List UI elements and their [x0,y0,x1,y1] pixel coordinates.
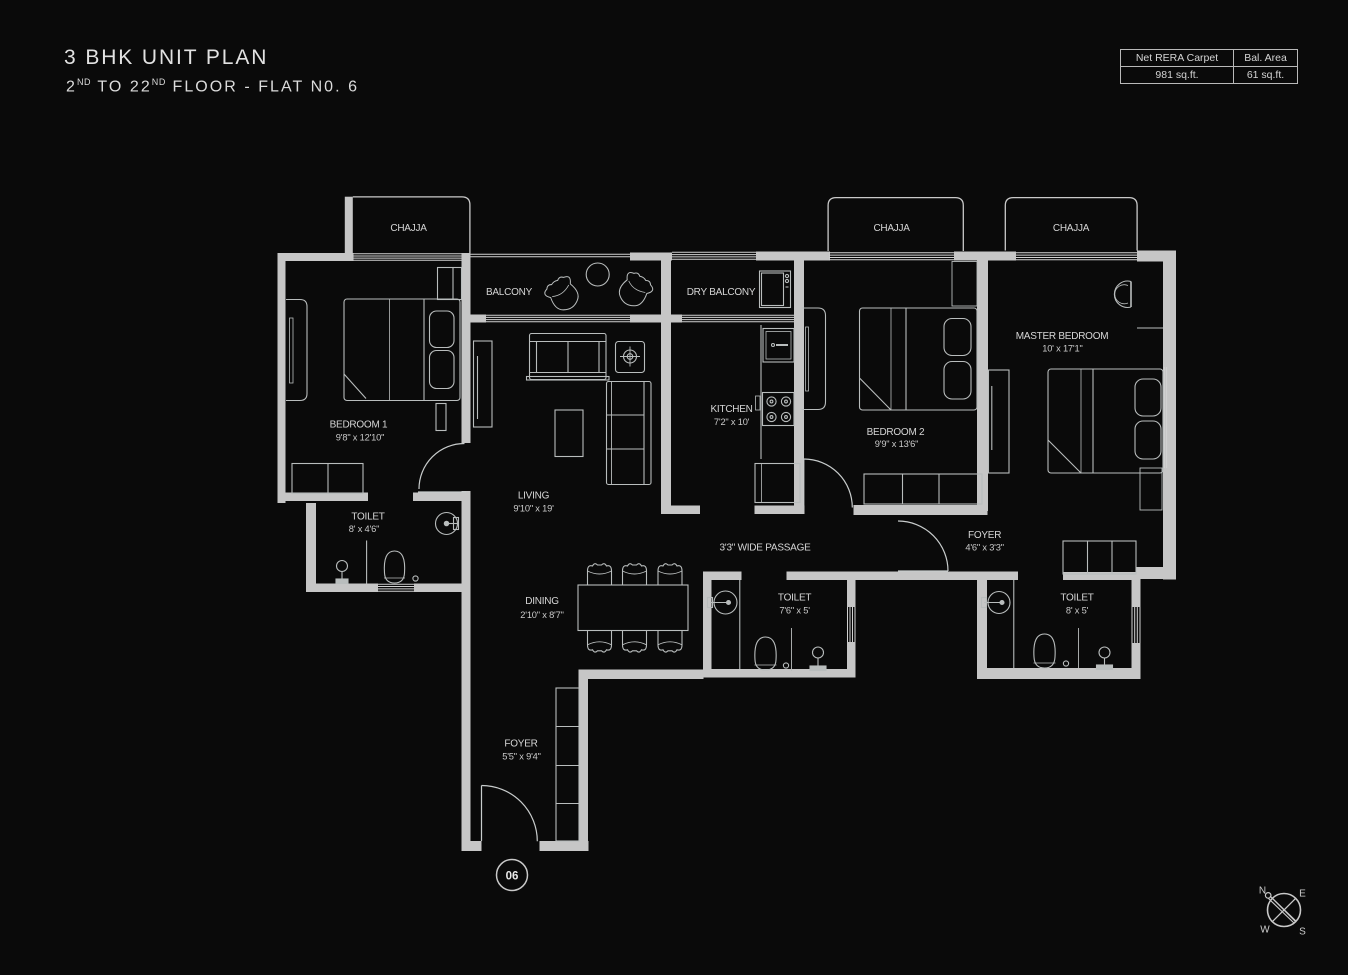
svg-text:S: S [1299,927,1306,938]
svg-text:BEDROOM 1: BEDROOM 1 [330,420,388,431]
svg-text:9'9" x 13'6": 9'9" x 13'6" [875,439,918,449]
svg-text:2'10" x 8'7": 2'10" x 8'7" [520,610,563,620]
svg-text:TOILET: TOILET [1060,593,1093,604]
svg-text:TOILET: TOILET [778,593,811,604]
svg-text:TOILET: TOILET [351,512,384,523]
svg-text:FOYER: FOYER [504,739,537,750]
svg-text:N: N [1259,886,1266,897]
svg-text:8' x 5': 8' x 5' [1066,606,1089,616]
svg-text:DINING: DINING [525,596,559,607]
svg-text:BEDROOM 2: BEDROOM 2 [867,427,925,438]
svg-text:CHAJJA: CHAJJA [873,223,910,234]
svg-text:5'5" x 9'4": 5'5" x 9'4" [502,752,540,762]
svg-text:KITCHEN: KITCHEN [711,404,753,415]
svg-text:7'2" x 10': 7'2" x 10' [714,417,750,427]
svg-text:LIVING: LIVING [518,491,550,502]
svg-text:W: W [1260,925,1270,936]
svg-text:9'8" x 12'10": 9'8" x 12'10" [336,433,384,443]
svg-text:MASTER BEDROOM: MASTER BEDROOM [1016,331,1109,342]
svg-text:7'6" x 5': 7'6" x 5' [779,606,810,616]
svg-text:BALCONY: BALCONY [486,287,533,298]
svg-text:DRY BALCONY: DRY BALCONY [687,287,756,298]
svg-text:4'6" x 3'3": 4'6" x 3'3" [965,543,1003,553]
svg-text:E: E [1299,889,1306,900]
svg-text:8' x 4'6": 8' x 4'6" [349,524,379,534]
svg-text:06: 06 [506,871,519,883]
svg-text:10' x 17'1": 10' x 17'1" [1042,344,1082,354]
svg-text:CHAJJA: CHAJJA [390,223,427,234]
svg-text:9'10" x 19': 9'10" x 19' [513,504,554,514]
svg-text:FOYER: FOYER [968,530,1001,541]
svg-text:3'3" WIDE PASSAGE: 3'3" WIDE PASSAGE [719,543,811,554]
svg-text:CHAJJA: CHAJJA [1053,223,1090,234]
